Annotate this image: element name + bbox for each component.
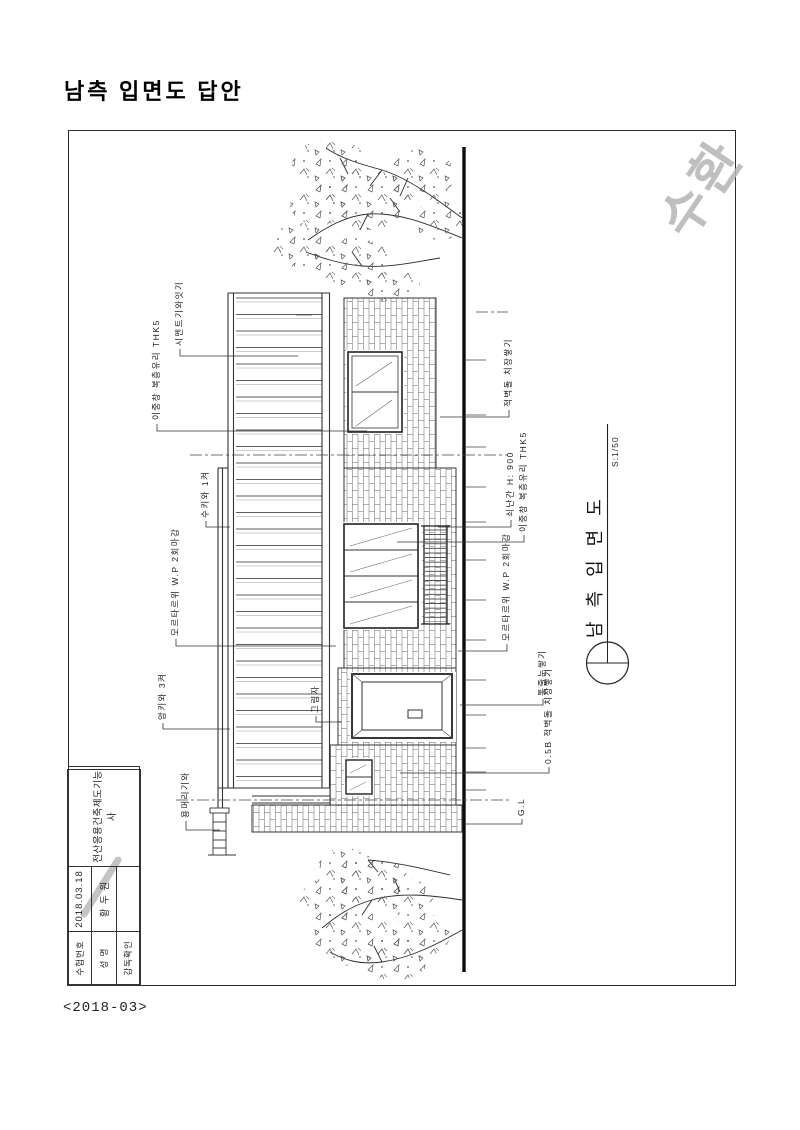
annotation-brick-laying: 적벽돌 치장쌓기 [503,338,513,407]
annotation-double-window-right: 이중창 복층유리 THK5 [518,431,528,532]
annotation-brick-05b: 0.5B 적벽돌 치장쌓기 [543,668,553,764]
annotation-concave-tile: 암키와 3켜 [157,673,167,720]
annotation-double-window-left: 이중창 복층유리 THK5 [151,319,161,420]
sheet-number: <2018-03> [63,1000,148,1016]
annotation-ground-line: G.L [516,798,526,816]
supervisor-label: 감독확인 [117,932,140,985]
exam-no-label: 수험번호 [69,932,92,985]
certification-title: 전산응용건축제도기능사 [69,767,140,867]
exam-sheet: 남측 입면도 답안 [0,0,800,1130]
annotation-mortar-right: 모르타르위 W.P 2회마감 [501,533,511,641]
annotation-cement-tile: 시멘트기와잇기 [174,281,184,346]
annotation-convex-tile: 수키와 1켜 [200,471,210,518]
title-block: 수험번호 2018.03.18 전산응용건축제도기능사 성 명 황 두 원 감독… [68,770,140,985]
annotation-ridge-end-tile: 용머리기와 [180,771,190,818]
exam-date-value: 2018.03.18 [69,867,92,932]
name-value: 황 두 원 [91,867,117,932]
annotation-handrail: 쇠난간 H: 900 [505,451,515,517]
drawing-title: 남측입면도 [584,485,606,638]
annotation-shadow: 그림자 [310,685,320,713]
supervisor-value [117,867,140,932]
name-label: 성 명 [91,932,117,985]
drawing-scale: S:1/50 [610,436,620,467]
annotation-mortar-left: 모르타르위 W.P 2회마감 [170,528,180,636]
drawing-frame [68,130,736,986]
page-title: 남측 입면도 답안 [64,74,244,106]
